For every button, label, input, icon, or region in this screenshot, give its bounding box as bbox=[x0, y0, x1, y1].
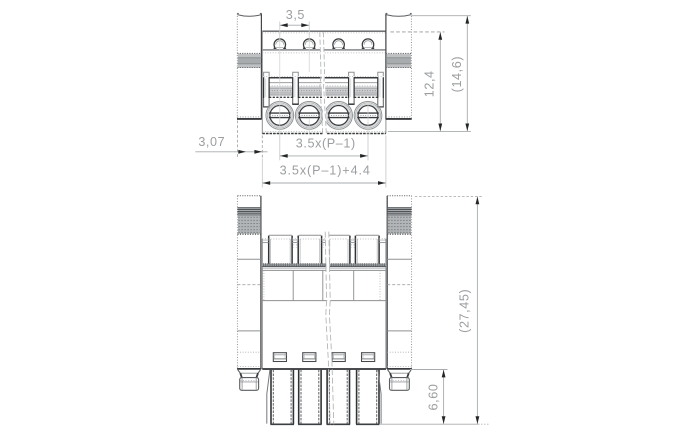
svg-text:6,60: 6,60 bbox=[426, 384, 440, 411]
svg-text:3.5x(P–1)+4.4: 3.5x(P–1)+4.4 bbox=[280, 164, 371, 178]
svg-text:3,5: 3,5 bbox=[286, 8, 305, 22]
svg-text:3,07: 3,07 bbox=[198, 135, 225, 149]
svg-text:12,4: 12,4 bbox=[423, 70, 437, 97]
svg-text:(27,45): (27,45) bbox=[457, 289, 471, 333]
svg-text:(14,6): (14,6) bbox=[450, 56, 464, 93]
svg-text:3.5x(P–1): 3.5x(P–1) bbox=[296, 137, 356, 151]
